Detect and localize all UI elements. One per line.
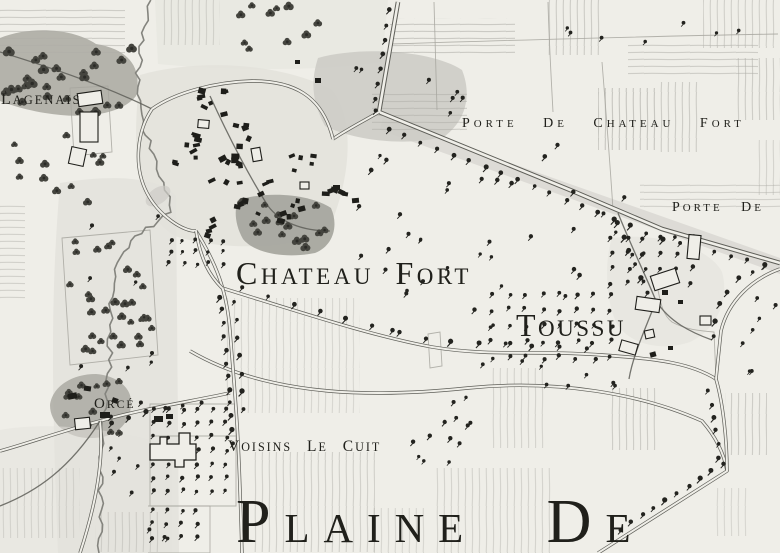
tree-icon — [454, 416, 458, 422]
tree-icon — [181, 250, 185, 255]
tree-icon — [472, 307, 477, 314]
tree-icon — [590, 292, 595, 298]
map-label-orce: ORCÉ — [94, 396, 136, 412]
tree-icon — [223, 420, 228, 426]
tree-icon — [209, 419, 213, 425]
bush-icon — [126, 44, 137, 53]
building — [295, 198, 300, 203]
tree-icon — [506, 306, 510, 312]
road-path — [716, 269, 780, 379]
map-label-porte-de-chateau-fort: PORTE DE CHATEAU FORT — [462, 116, 745, 131]
tree-icon — [476, 340, 482, 348]
tree-icon — [193, 508, 198, 514]
tree-icon — [571, 267, 576, 274]
tree-icon — [427, 433, 432, 440]
tree-icon — [384, 158, 389, 165]
tree-icon — [228, 413, 234, 421]
tree-icon — [542, 307, 546, 313]
tree-icon — [410, 439, 415, 446]
map-label-porte-de: PORTE DE — [672, 200, 764, 215]
hatch-patch — [490, 368, 548, 448]
map-label-voisins-le-cuit: VOISINS LE CUIT — [228, 438, 381, 455]
hatch-patch — [0, 205, 25, 300]
map-label-lagenais: LAGENAIS — [1, 91, 82, 108]
tree-icon — [195, 420, 200, 426]
tree-icon — [229, 427, 235, 435]
bush-icon — [16, 173, 23, 179]
tree-icon — [542, 154, 547, 161]
tree-icon — [447, 460, 451, 465]
hatch-patch — [95, 512, 163, 552]
tree-icon — [713, 428, 718, 435]
building — [295, 60, 300, 64]
tree-icon — [773, 303, 778, 309]
building — [100, 412, 110, 418]
tree-icon — [489, 309, 493, 315]
tree-icon — [520, 359, 524, 365]
hatch-patch — [755, 140, 780, 195]
tree-icon — [181, 509, 185, 514]
building — [236, 144, 243, 150]
building-outline — [68, 147, 86, 167]
tree-icon — [522, 293, 526, 299]
tree-icon — [488, 338, 493, 344]
bush-icon — [62, 132, 70, 139]
building-outline — [644, 329, 654, 339]
tree-icon — [705, 389, 709, 395]
hatch-patch — [703, 0, 775, 48]
tree-icon — [593, 357, 598, 364]
tree-icon — [489, 255, 493, 260]
building — [298, 155, 303, 160]
building-outline — [700, 316, 711, 325]
building — [678, 300, 683, 304]
tree-icon — [687, 484, 692, 491]
tree-icon — [223, 463, 227, 468]
tree-icon — [503, 341, 507, 347]
tree-icon — [589, 341, 594, 347]
tree-icon — [210, 446, 215, 452]
tree-icon — [724, 290, 729, 297]
building — [668, 346, 673, 350]
tree-icon — [614, 230, 618, 235]
tree-icon — [509, 181, 514, 188]
tree-icon — [182, 422, 186, 428]
tree-icon — [711, 334, 715, 340]
hatch-patch — [0, 468, 80, 538]
hatch-patch — [736, 58, 780, 120]
building-outline — [300, 182, 309, 189]
tree-icon — [179, 476, 184, 483]
tree-icon — [491, 357, 495, 362]
tree-icon — [464, 396, 468, 401]
tree-icon — [508, 354, 513, 360]
building — [154, 416, 163, 422]
building — [184, 142, 189, 147]
tree-icon — [209, 475, 213, 481]
tree-icon — [406, 232, 411, 238]
tree-icon — [417, 455, 421, 460]
boundary-line — [428, 332, 442, 368]
tree-icon — [422, 459, 426, 464]
tree-icon — [750, 328, 754, 333]
building — [310, 154, 317, 159]
building-outline — [635, 296, 661, 312]
tree-icon — [574, 306, 579, 313]
hatch-patch — [390, 18, 515, 56]
tree-icon — [651, 506, 655, 512]
tree-icon — [494, 178, 499, 185]
tree-icon — [661, 497, 667, 505]
tree-icon — [757, 317, 761, 322]
tree-icon — [627, 223, 633, 231]
tree-icon — [359, 254, 364, 260]
tree-icon — [579, 203, 584, 210]
tree-icon — [194, 462, 199, 469]
tree-icon — [673, 235, 677, 241]
tree-icon — [195, 263, 199, 268]
tree-icon — [508, 324, 512, 329]
building-outline — [687, 235, 701, 260]
tree-icon — [368, 168, 373, 175]
hatch-patch — [160, 0, 220, 45]
tree-icon — [755, 296, 759, 302]
tree-icon — [547, 190, 551, 196]
tree-icon — [601, 211, 605, 217]
hatch-patch — [725, 393, 767, 455]
building-outline — [80, 112, 98, 142]
tree-icon — [508, 293, 512, 298]
hatch-patch — [225, 298, 360, 413]
hatch-patch — [0, 8, 125, 56]
tree-icon — [607, 309, 611, 315]
tree-icon — [390, 328, 395, 335]
tree-icon — [577, 273, 582, 280]
tree-icon — [457, 441, 462, 447]
tree-icon — [716, 456, 721, 463]
building — [342, 192, 349, 197]
building — [243, 123, 249, 128]
bush-icon — [95, 158, 104, 166]
tree-icon — [622, 195, 627, 201]
building — [315, 78, 321, 83]
tree-icon — [595, 210, 600, 217]
tree-icon — [223, 489, 227, 494]
building — [242, 197, 249, 204]
building-outline — [619, 340, 638, 355]
tree-icon — [499, 284, 503, 289]
building — [309, 162, 314, 166]
tree-icon — [541, 291, 545, 297]
tree-icon — [644, 232, 648, 238]
tree-icon — [451, 400, 456, 406]
tree-icon — [571, 227, 576, 233]
building-outline — [74, 417, 90, 430]
tree-icon — [584, 346, 589, 352]
tree-icon — [195, 522, 200, 529]
building — [662, 290, 668, 295]
tree-icon — [219, 307, 224, 314]
hatch-patch — [712, 488, 747, 536]
tree-icon — [575, 292, 580, 299]
tree-icon — [447, 339, 453, 347]
tree-icon — [369, 323, 374, 329]
tree-icon — [478, 252, 482, 257]
tree-icon — [487, 240, 492, 246]
tree-icon — [479, 177, 484, 183]
building — [649, 351, 656, 357]
tree-icon — [224, 474, 228, 480]
tree-icon — [681, 21, 685, 27]
tree-icon — [584, 373, 588, 378]
building — [352, 198, 359, 204]
tree-icon — [356, 204, 361, 211]
tree-icon — [557, 291, 561, 297]
hatch-patch — [548, 0, 603, 55]
tree-icon — [210, 489, 214, 494]
tree-icon — [697, 476, 703, 484]
tree-icon — [386, 247, 391, 254]
tree-icon — [178, 521, 182, 527]
tree-icon — [507, 341, 512, 348]
tree-icon — [221, 262, 225, 268]
building — [231, 158, 238, 164]
tree-icon — [442, 420, 447, 427]
map-canvas: LAGENAISPORTE DE CHATEAU FORTPORTE DECHA… — [0, 0, 780, 553]
tree-icon — [446, 181, 451, 187]
building — [194, 156, 198, 160]
tree-icon — [490, 292, 495, 298]
tree-icon — [183, 261, 187, 266]
tree-icon — [195, 474, 200, 480]
tree-icon — [750, 270, 754, 275]
tree-icon — [529, 344, 534, 351]
tree-icon — [179, 534, 183, 540]
tree-icon — [736, 275, 741, 282]
tree-icon — [193, 248, 197, 254]
tree-icon — [423, 336, 428, 342]
map-label-chateau-fort: CHATEAU FORT — [236, 255, 472, 291]
tree-icon — [740, 341, 744, 347]
tree-icon — [557, 345, 562, 351]
tree-icon — [397, 330, 402, 337]
tree-icon — [573, 357, 577, 363]
tree-icon — [418, 238, 422, 243]
tree-icon — [708, 468, 714, 476]
tree-icon — [555, 143, 560, 150]
tree-icon — [196, 447, 201, 454]
bush-icon — [15, 157, 24, 164]
tree-icon — [488, 325, 492, 330]
tree-icon — [210, 462, 214, 467]
tree-icon — [180, 239, 184, 244]
tree-icon — [541, 341, 545, 347]
tree-icon — [182, 408, 187, 414]
tree-icon — [448, 436, 453, 443]
building-outline — [198, 120, 210, 129]
tree-icon — [709, 403, 714, 409]
tree-icon — [195, 534, 200, 541]
tree-icon — [465, 423, 470, 429]
tree-icon — [181, 487, 185, 493]
tree-icon — [674, 491, 678, 497]
bush-icon — [11, 142, 18, 147]
tree-icon — [591, 308, 595, 314]
tree-icon — [711, 415, 717, 422]
tree-icon — [221, 249, 225, 254]
bush-icon — [40, 160, 50, 168]
tree-icon — [211, 407, 215, 413]
tree-icon — [397, 212, 402, 219]
tree-icon — [528, 234, 533, 241]
bush-icon — [90, 152, 97, 158]
tree-icon — [542, 357, 547, 363]
tree-icon — [194, 490, 198, 495]
building — [333, 185, 340, 190]
tree-icon — [378, 154, 382, 159]
tree-icon — [445, 188, 449, 194]
tree-icon — [480, 362, 484, 368]
bush-icon — [39, 174, 48, 182]
building — [84, 386, 92, 392]
tree-icon — [195, 407, 199, 413]
tree-icon — [565, 198, 570, 204]
tree-icon — [563, 294, 567, 300]
bush-icon — [99, 153, 106, 159]
tree-icon — [216, 295, 222, 303]
building — [166, 414, 173, 419]
tree-icon — [712, 250, 716, 256]
historical-map: LAGENAISPORTE DE CHATEAU FORTPORTE DECHA… — [0, 0, 780, 553]
building-outline — [251, 147, 262, 161]
